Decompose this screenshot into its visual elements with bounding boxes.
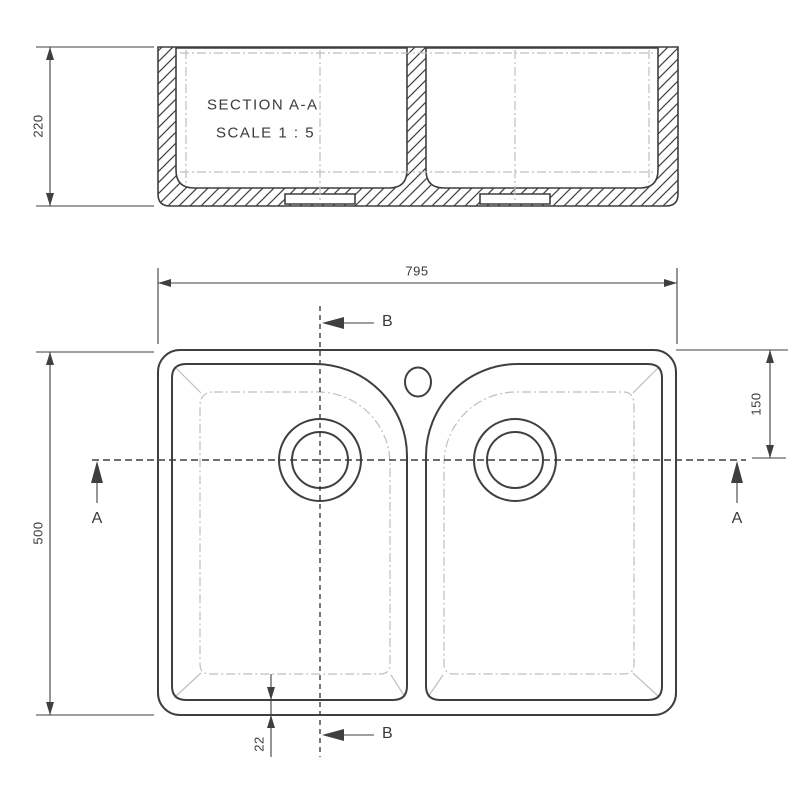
dim-width-795 <box>158 268 677 344</box>
marker-a-right-arrow <box>731 461 743 483</box>
dim-width-label: 795 <box>405 265 428 278</box>
dim-width-arrow-right <box>664 279 677 287</box>
dim-offset-arrow-top <box>766 350 774 363</box>
marker-b-top-arrow <box>322 317 344 329</box>
marker-a-right-label: A <box>732 511 743 527</box>
section-marker-b-top <box>322 317 374 329</box>
section-title-label: SECTION A-A <box>207 98 319 113</box>
section-marker-b-bottom <box>322 729 374 741</box>
marker-b-top-label: B <box>382 314 393 330</box>
plan-left-bowl-outline <box>172 364 407 700</box>
dim-rim-arrow-bottom <box>267 715 275 728</box>
plan-view <box>92 306 746 757</box>
marker-b-bottom-label: B <box>382 726 393 742</box>
section-marker-a-right <box>731 461 743 503</box>
dim-depth-arrow-top <box>46 47 54 60</box>
marker-a-left-arrow <box>91 461 103 483</box>
dim-drain-offset-label: 150 <box>750 392 763 415</box>
dim-width-arrow-left <box>158 279 171 287</box>
marker-b-bottom-arrow <box>322 729 344 741</box>
dim-length-arrow-top <box>46 352 54 365</box>
plan-tap-hole <box>405 368 431 397</box>
plan-sink-outline <box>158 350 676 715</box>
section-marker-a-left <box>91 461 103 503</box>
dim-length-500 <box>36 352 154 715</box>
dim-depth-arrow-bottom <box>46 193 54 206</box>
dim-rim-label: 22 <box>253 736 266 751</box>
marker-a-left-label: A <box>92 511 103 527</box>
section-scale-label: SCALE 1 : 5 <box>216 126 315 141</box>
dim-depth-label: 220 <box>32 114 45 137</box>
technical-drawing-svg <box>0 0 800 800</box>
dim-rim-arrow-top <box>267 687 275 700</box>
plan-corner-diagonals <box>175 367 659 697</box>
dim-length-arrow-bottom <box>46 702 54 715</box>
dim-drain-offset-150 <box>676 350 788 458</box>
dim-depth-220 <box>36 47 154 206</box>
dim-length-label: 500 <box>32 521 45 544</box>
dim-offset-arrow-bottom <box>766 445 774 458</box>
technical-drawing-page: SECTION A-A SCALE 1 : 5 220 795 500 150 … <box>0 0 800 800</box>
plan-right-bowl-outline <box>426 364 662 700</box>
